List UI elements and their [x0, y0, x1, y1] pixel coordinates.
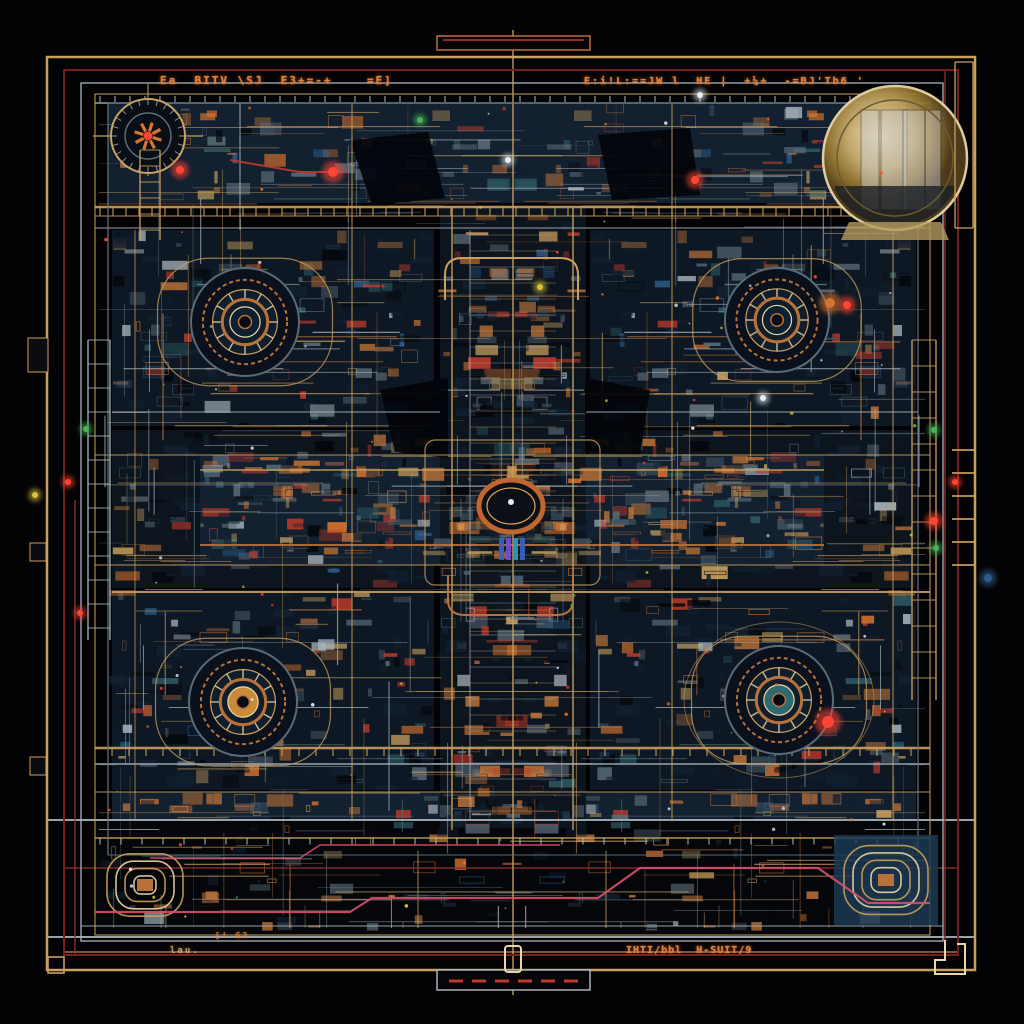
- glitch-text-bottom-right: IHTI/bbl H-SUIT/9: [626, 945, 752, 956]
- coil-1: [834, 835, 938, 925]
- glitch-text-top-right: E:i!L:==JW l HE | +¼+ -=BJ'Tb6 ': [584, 76, 865, 87]
- blueprint-canvas: Ea BITV \SJ E3+=-+ =E] E:i!L:==JW l HE |…: [0, 0, 1024, 1024]
- glitch-text-bottom-mid: [! G3: [215, 931, 249, 940]
- glitch-text-top-left: Ea BITV \SJ E3+=-+ =E]: [160, 74, 393, 87]
- schematic-drawing: [0, 0, 1024, 1024]
- glitch-text-bottom-left: lau.: [170, 946, 200, 956]
